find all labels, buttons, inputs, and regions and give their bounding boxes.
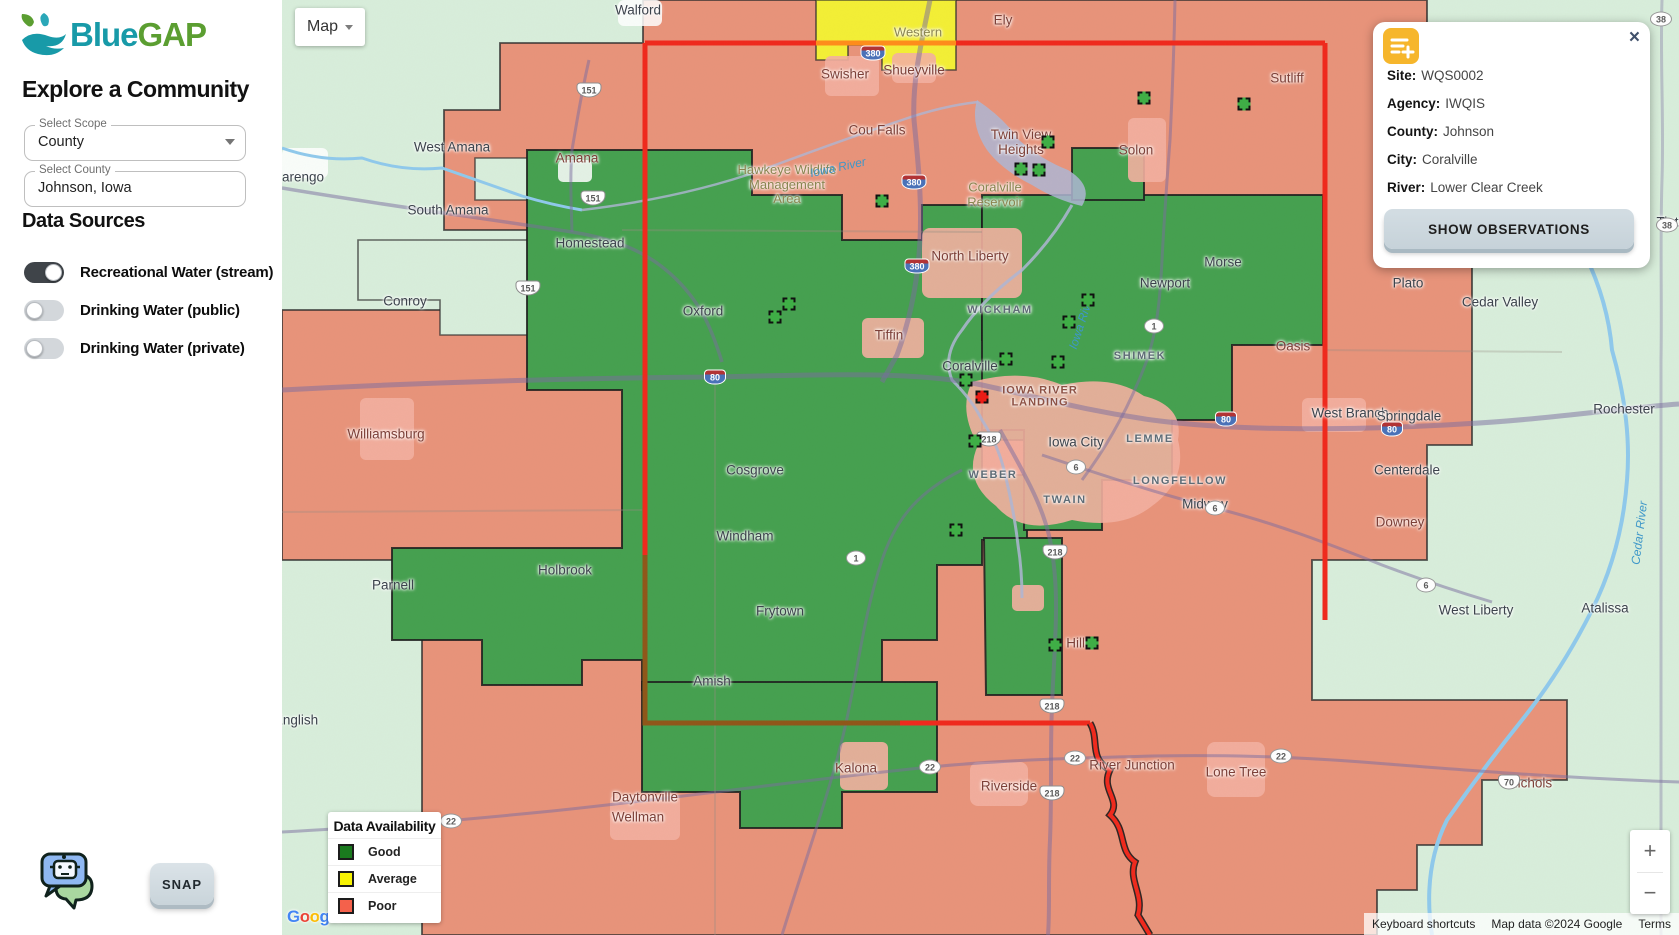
info-row-value: Johnson <box>1443 124 1494 139</box>
toggle-on[interactable] <box>24 262 64 283</box>
monitoring-site-marker[interactable] <box>1082 294 1095 307</box>
legend-color-swatch <box>338 844 354 860</box>
monitoring-site-marker[interactable] <box>1000 353 1013 366</box>
snap-button[interactable]: SNAP <box>150 863 214 905</box>
zoom-out-button[interactable]: − <box>1630 873 1670 915</box>
select-county-label: Select County <box>35 164 115 176</box>
zoom-in-button[interactable]: + <box>1630 830 1670 872</box>
monitoring-site-marker[interactable] <box>876 195 889 208</box>
monitoring-site-marker[interactable] <box>1052 356 1065 369</box>
info-row-label: Site: <box>1387 68 1416 83</box>
info-row-label: Agency: <box>1387 96 1440 111</box>
monitoring-site-marker[interactable] <box>1042 136 1055 149</box>
data-source-row: Recreational Water (stream) <box>24 262 273 283</box>
toggle-off[interactable] <box>24 338 64 359</box>
legend-row: Poor <box>328 892 441 919</box>
data-availability-legend: Data Availability GoodAveragePoor <box>328 812 441 923</box>
monitoring-site-marker[interactable] <box>960 374 973 387</box>
data-source-label: Drinking Water (public) <box>80 302 240 319</box>
bluegap-leaf-wave-icon <box>18 12 70 58</box>
legend-row: Average <box>328 865 441 892</box>
info-row: Site:WQS0002 <box>1387 68 1543 83</box>
monitoring-site-marker[interactable] <box>1238 98 1251 111</box>
legend-label: Good <box>368 845 401 859</box>
map-type-control[interactable]: Map <box>295 8 365 46</box>
monitoring-site-marker[interactable] <box>1086 637 1099 650</box>
monitoring-site-marker[interactable] <box>783 298 796 311</box>
legend-row: Good <box>328 838 441 865</box>
info-row-value: WQS0002 <box>1421 68 1483 83</box>
logo-text-blue: Blue <box>70 16 138 53</box>
info-row-label: City: <box>1387 152 1417 167</box>
info-row: City:Coralville <box>1387 152 1543 167</box>
site-info-card: × Site:WQS0002Agency:IWQISCounty:Johnson… <box>1373 22 1650 268</box>
monitoring-site-marker[interactable] <box>1049 639 1062 652</box>
data-source-row: Drinking Water (public) <box>24 300 240 321</box>
bluegap-logo: BlueGAP <box>18 12 206 58</box>
data-sources-heading: Data Sources <box>22 210 145 233</box>
info-row: Agency:IWQIS <box>1387 96 1543 111</box>
select-scope-label: Select Scope <box>35 118 111 130</box>
monitoring-site-marker[interactable] <box>1033 164 1046 177</box>
select-county-field[interactable]: Select County Johnson, Iowa <box>24 171 246 207</box>
data-source-row: Drinking Water (private) <box>24 338 245 359</box>
info-row-value: IWQIS <box>1445 96 1485 111</box>
playlist-add-icon <box>1383 28 1419 64</box>
explore-community-heading: Explore a Community <box>22 76 249 103</box>
data-source-label: Drinking Water (private) <box>80 340 245 357</box>
info-row-value: Lower Clear Creek <box>1430 180 1543 195</box>
legend-color-swatch <box>338 898 354 914</box>
zoom-control: + − <box>1630 830 1670 914</box>
legend-title: Data Availability <box>328 818 441 834</box>
toggle-off[interactable] <box>24 300 64 321</box>
info-row-label: County: <box>1387 124 1438 139</box>
google-logo-letter: G <box>287 907 300 926</box>
toggle-knob <box>45 264 62 281</box>
chatbot-button[interactable] <box>34 848 108 917</box>
monitoring-site-marker[interactable] <box>1063 316 1076 329</box>
select-county-value: Johnson, Iowa <box>38 180 132 196</box>
info-row: River:Lower Clear Creek <box>1387 180 1543 195</box>
attribution-link[interactable]: Map data ©2024 Google <box>1483 913 1630 935</box>
sidebar: BlueGAP Explore a Community Select Scope… <box>0 0 282 935</box>
legend-color-swatch <box>338 871 354 887</box>
monitoring-site-marker[interactable] <box>950 524 963 537</box>
google-logo-letter: o <box>300 907 310 926</box>
select-scope-field[interactable]: Select Scope County <box>24 125 246 161</box>
map-canvas[interactable]: arengoWalfordWesternElySwisherShueyville… <box>282 0 1679 935</box>
legend-label: Poor <box>368 899 396 913</box>
monitoring-site-marker[interactable] <box>769 311 782 324</box>
show-observations-button[interactable]: SHOW OBSERVATIONS <box>1384 209 1634 249</box>
chevron-down-icon <box>345 25 353 30</box>
monitoring-site-marker[interactable] <box>969 435 982 448</box>
monitoring-site-marker[interactable] <box>1138 92 1151 105</box>
site-info-rows: Site:WQS0002Agency:IWQISCounty:JohnsonCi… <box>1387 68 1543 208</box>
google-logo-letter: o <box>310 907 320 926</box>
logo-text-gap: GAP <box>138 16 207 53</box>
map-type-label: Map <box>307 18 338 36</box>
close-icon[interactable]: × <box>1629 28 1640 47</box>
attribution-link[interactable]: Terms <box>1630 913 1679 935</box>
select-scope-value: County <box>38 134 84 150</box>
monitoring-site-marker[interactable] <box>1015 163 1028 176</box>
info-row: County:Johnson <box>1387 124 1543 139</box>
data-source-label: Recreational Water (stream) <box>80 264 273 281</box>
info-row-label: River: <box>1387 180 1425 195</box>
chevron-down-icon <box>225 139 235 145</box>
toggle-knob <box>26 340 43 357</box>
info-row-value: Coralville <box>1422 152 1478 167</box>
map-attribution: Keyboard shortcutsMap data ©2024 GoogleT… <box>1364 913 1679 935</box>
legend-label: Average <box>368 872 417 886</box>
attribution-link[interactable]: Keyboard shortcuts <box>1364 913 1483 935</box>
selected-site-marker[interactable] <box>976 391 989 404</box>
toggle-knob <box>26 302 43 319</box>
